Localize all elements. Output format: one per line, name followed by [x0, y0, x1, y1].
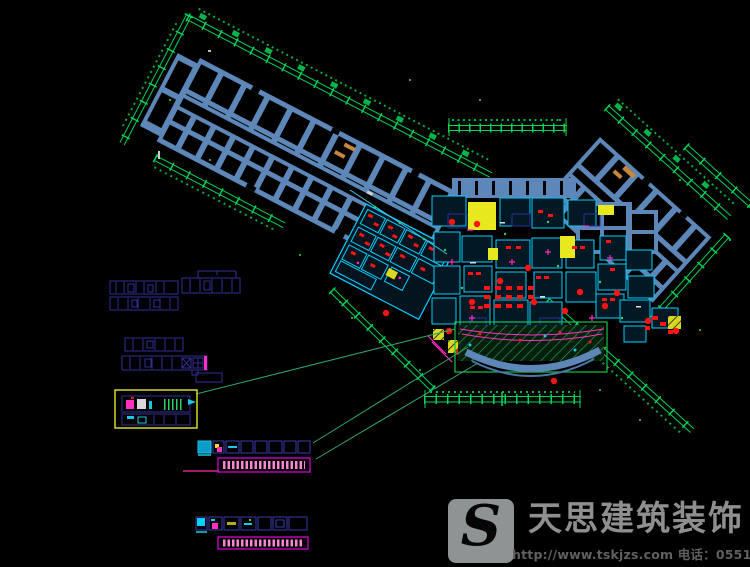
top-dimension-chain — [448, 118, 567, 136]
label-row-1-title — [183, 458, 310, 472]
company-name: 天思建筑装饰 — [528, 500, 744, 538]
legend-box — [115, 390, 197, 428]
label-row-2-title — [218, 537, 308, 549]
company-contact-line: http://www.tskjzs.com 电话：0551-65568226 — [512, 544, 750, 563]
elevation-strips — [110, 271, 240, 382]
floor-plan-drawing — [0, 0, 750, 567]
label-row-2 — [196, 517, 307, 532]
cad-floor-plan-canvas: S 天思建筑装饰 http://www.tskjzs.com 电话：0551-6… — [0, 0, 750, 567]
company-logo-icon: S — [448, 499, 514, 563]
logo-letter: S — [461, 493, 501, 559]
label-row-1 — [198, 441, 310, 455]
company-watermark: S 天思建筑装饰 http://www.tskjzs.com 电话：0551-6… — [448, 497, 750, 567]
bottom-dimension-chain — [424, 390, 581, 408]
lobby-atrium — [455, 322, 607, 376]
